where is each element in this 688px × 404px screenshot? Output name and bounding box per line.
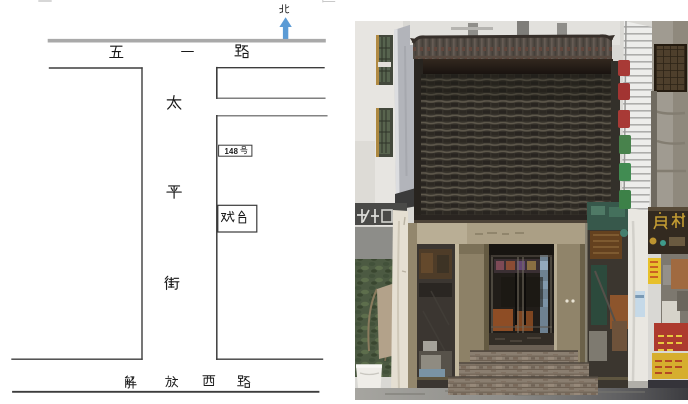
svg-text:148: 148 [225,147,239,156]
